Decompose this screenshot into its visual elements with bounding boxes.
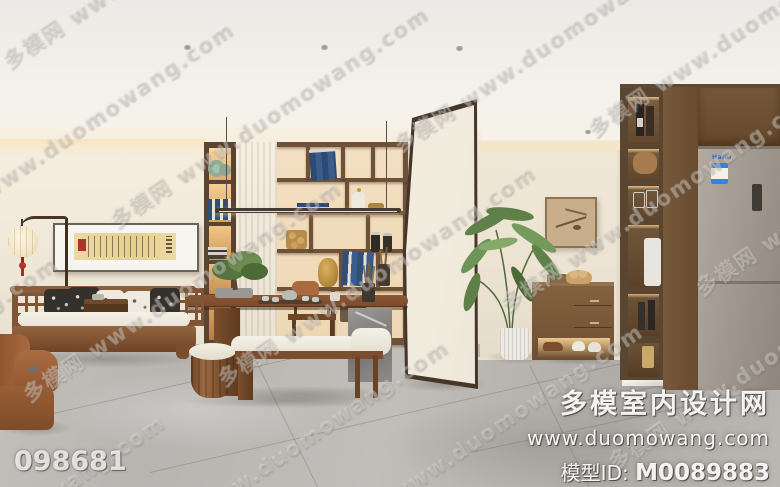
energy-label: [711, 163, 728, 184]
drawer-line: [574, 327, 612, 328]
plant-pot: [500, 328, 530, 360]
glass-cup: [646, 190, 658, 208]
bench-leg: [355, 357, 360, 398]
shelf-light: [628, 294, 659, 298]
tea-cup: [312, 297, 319, 302]
marble-vein: [355, 311, 387, 327]
fridge-display: [752, 184, 762, 211]
render-code: 098681: [14, 446, 127, 477]
cove-light-right: [480, 142, 620, 154]
art-leaf: [573, 225, 581, 230]
drawer-handle: [590, 300, 599, 302]
brand-url: www.duomowang.com: [527, 426, 770, 450]
slipper-white: [588, 342, 601, 352]
ceiling-spotlight: [183, 45, 192, 50]
brush: [368, 262, 370, 285]
sofa-leg: [176, 346, 189, 359]
shelf-light: [628, 225, 659, 229]
recliner-lever: [28, 366, 38, 373]
wine-bottle: [646, 106, 654, 136]
sofa-base: [12, 326, 196, 352]
dried-arrangement: [633, 152, 657, 174]
bottle-label: [637, 118, 643, 127]
dark-jar: [371, 232, 380, 252]
dark-bottle: [648, 300, 655, 330]
calligraphy-artwork: [53, 223, 199, 272]
drawer-handle: [590, 322, 599, 324]
tea-cup: [302, 296, 309, 301]
refrigerator: Haier: [698, 146, 780, 390]
shelf-divider: [341, 146, 345, 179]
tea-cup: [272, 297, 279, 302]
gold-vase: [318, 258, 338, 287]
interior-render: Haier 多模网 www.duomowang.com 多模网 www.duom…: [0, 0, 780, 487]
tea-cup: [262, 296, 269, 301]
bench-frame: [235, 351, 383, 359]
tassel-fringe: [21, 268, 24, 276]
binders: [309, 148, 337, 181]
paper-lantern: [8, 226, 38, 258]
sofa-seat-cushion: [18, 312, 190, 327]
calligraphy-scroll: [74, 233, 176, 260]
shelf-light: [628, 97, 659, 101]
bench-leg-panel: [238, 357, 253, 400]
open-bookshelf: [620, 88, 665, 380]
fridge-door-split: [698, 281, 780, 284]
cabinet-stile: [663, 87, 699, 390]
slipper-white: [572, 341, 585, 351]
drawer-line: [574, 305, 612, 306]
jade-disc: [219, 164, 231, 176]
scroll-title: [166, 236, 172, 253]
pouf-cushion: [189, 343, 236, 360]
glass-cup: [633, 192, 645, 208]
lantern-ribs: [8, 226, 38, 258]
jar: [642, 346, 654, 368]
book-stack: [208, 247, 227, 259]
watermark-brand-block: 多模室内设计网 www.duomowang.com 模型ID: M0089883: [527, 382, 770, 486]
ceiling-spotlight: [320, 45, 329, 50]
shelf-divider: [371, 146, 375, 179]
calligraphy-text: [86, 236, 160, 257]
armchair-base: [0, 386, 54, 430]
stacked-cakes: [286, 230, 307, 249]
brush-pot: [362, 283, 375, 302]
teapot: [282, 290, 297, 300]
pendant-cable: [386, 121, 387, 210]
jar-knob: [357, 188, 361, 192]
linear-pendant-light: [215, 208, 401, 213]
brush-cup: [378, 264, 390, 286]
art-branch: [565, 208, 587, 215]
kang-table-teapot: [92, 294, 104, 300]
red-seal: [78, 239, 86, 251]
bonsai-foliage: [241, 263, 268, 280]
shelf-divider: [366, 214, 370, 250]
sofa-pillow: [150, 288, 180, 315]
model-id-value: M0089883: [635, 460, 770, 486]
pendant-cable: [226, 117, 227, 210]
pendant-led: [219, 211, 397, 212]
tea-canister: [330, 292, 340, 301]
brand-name: 多模室内设计网: [527, 382, 770, 421]
ceiling-spotlight: [584, 130, 592, 134]
bread-basket: [566, 270, 592, 284]
panel-above-fridge: [698, 88, 780, 148]
model-id-label: 模型ID:: [561, 461, 629, 485]
model-id-line: 模型ID: M0089883: [527, 457, 770, 486]
cove-light-left: [0, 139, 205, 156]
bench-leg: [373, 355, 378, 398]
dark-bottle: [638, 302, 645, 330]
fridge-logo: Haier: [712, 154, 742, 161]
shelf-divider: [309, 214, 313, 250]
plant-leaves: [458, 204, 564, 312]
ceiling-spotlight: [455, 46, 464, 51]
water-dispenser: [644, 238, 661, 286]
